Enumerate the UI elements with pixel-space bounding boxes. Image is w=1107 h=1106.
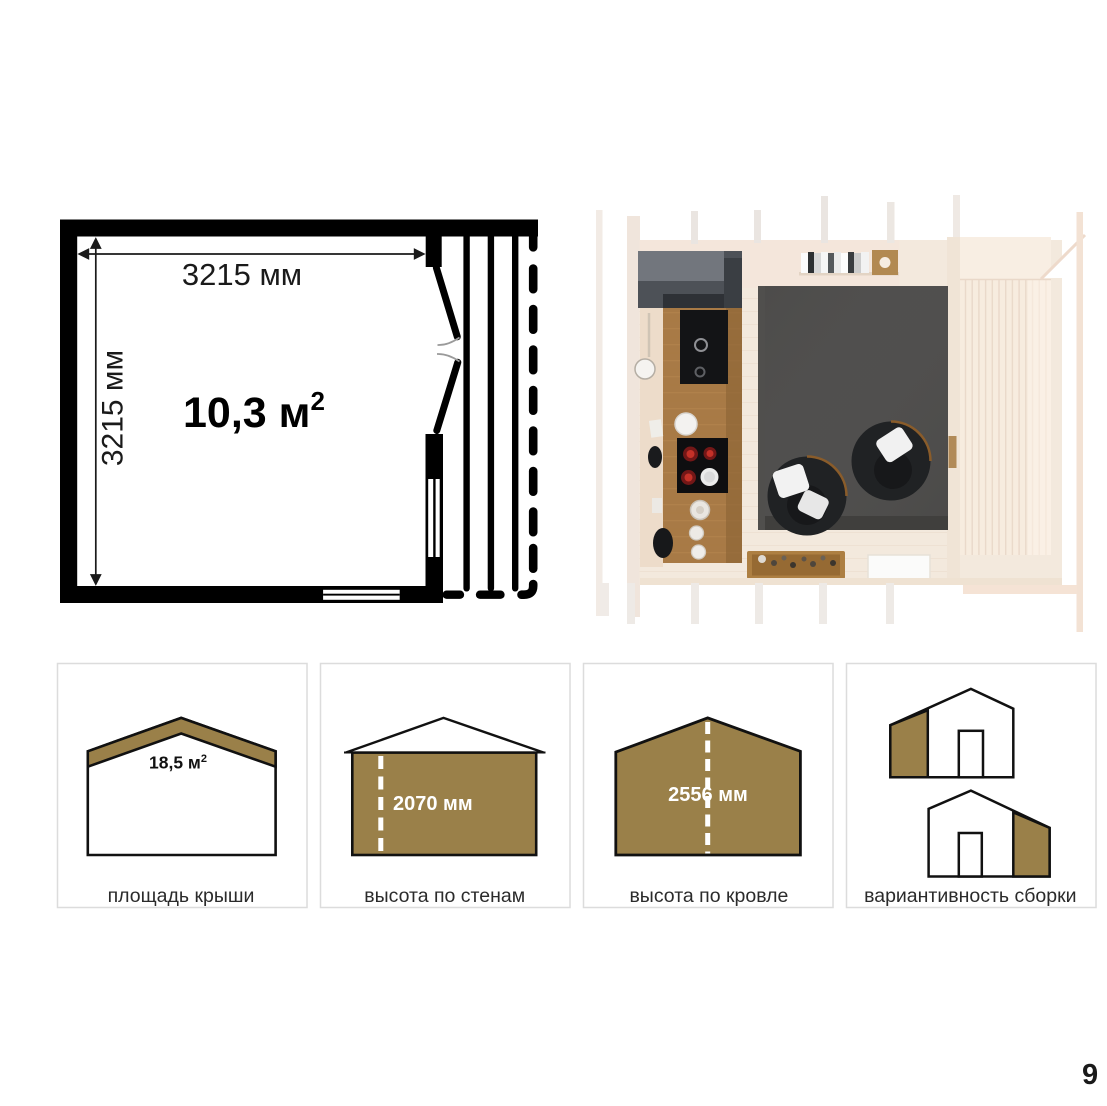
svg-text:3215 мм: 3215 мм <box>182 257 302 292</box>
svg-text:18,5 м2: 18,5 м2 <box>149 753 207 773</box>
svg-text:высота по кровле: высота по кровле <box>629 885 788 907</box>
svg-text:площадь крыши: площадь крыши <box>108 885 255 907</box>
svg-text:2070 мм: 2070 мм <box>393 793 473 815</box>
svg-text:9: 9 <box>1082 1059 1098 1091</box>
svg-text:вариантивность сборки: вариантивность сборки <box>864 885 1076 907</box>
svg-text:2556 мм: 2556 мм <box>668 784 748 806</box>
svg-text:высота по стенам: высота по стенам <box>364 885 525 907</box>
svg-text:10,3 м2: 10,3 м2 <box>183 386 325 437</box>
svg-text:3215 мм: 3215 мм <box>97 350 130 466</box>
